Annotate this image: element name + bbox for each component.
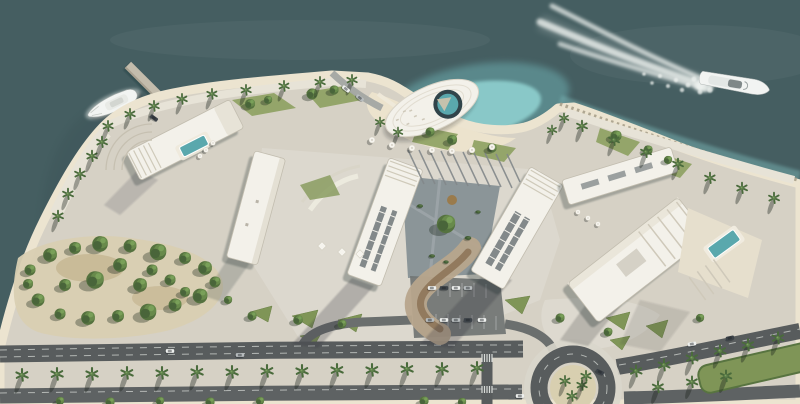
car-white <box>165 349 174 354</box>
car-dark <box>439 286 448 291</box>
boulevard-upper <box>0 349 523 354</box>
car-white <box>427 286 436 291</box>
car-silver <box>235 353 244 358</box>
car-silver <box>463 286 472 291</box>
car-white <box>451 286 460 291</box>
water-glint <box>110 20 490 60</box>
aerial-render <box>0 0 800 404</box>
car-white <box>515 394 524 399</box>
amber-tree <box>447 195 457 205</box>
car-dark <box>463 318 472 323</box>
car-white <box>477 318 486 323</box>
scene-canvas <box>0 0 800 404</box>
car-silver <box>451 318 460 323</box>
boulevard-lower <box>0 392 522 396</box>
car-white <box>439 318 448 323</box>
car-silver <box>425 318 434 323</box>
